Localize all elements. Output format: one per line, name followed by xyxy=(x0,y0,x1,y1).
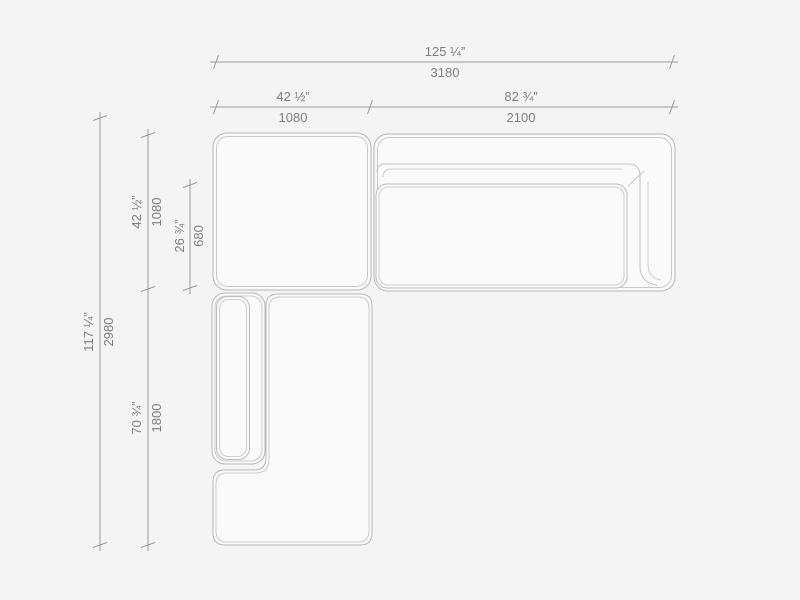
dim-chaise-depth-label-mm: 1800 xyxy=(149,404,164,433)
module-corner-seat xyxy=(213,133,371,290)
dim-overall-depth-label-mm: 2980 xyxy=(101,318,116,347)
sofa-plan-drawing: 125 ¼” 3180 42 ½” 1080 82 ¾” 2100 117 ¼”… xyxy=(0,0,800,600)
dim-top-depth-label-in: 42 ½” xyxy=(129,195,144,228)
chaise-armrest-cushion-outline xyxy=(217,297,250,460)
module-sofa-right xyxy=(374,134,675,291)
dim-right-width-label-mm: 2100 xyxy=(507,110,536,125)
dim-seat-depth-label-in: 26 ¾” xyxy=(172,219,187,252)
dim-overall-width-label-mm: 3180 xyxy=(431,65,460,80)
dim-overall-width-label-in: 125 ¼” xyxy=(425,44,465,59)
sofa-plan-page: 125 ¼” 3180 42 ½” 1080 82 ¾” 2100 117 ¼”… xyxy=(0,0,800,600)
dim-seat-depth-label-mm: 680 xyxy=(191,225,206,247)
dim-left-width-label-mm: 1080 xyxy=(279,110,308,125)
dim-left-width-label-in: 42 ½” xyxy=(276,89,309,104)
dim-top-depth-label-mm: 1080 xyxy=(149,198,164,227)
sofa-seat-cushion-outline xyxy=(376,184,627,288)
module-chaise xyxy=(212,293,372,545)
dim-section-depths xyxy=(141,129,155,551)
corner-seat-outline xyxy=(213,133,371,290)
dim-right-width-label-in: 82 ¾” xyxy=(504,89,537,104)
dim-overall-depth-label-in: 117 ¼” xyxy=(81,312,96,352)
dim-chaise-depth-label-in: 70 ¾” xyxy=(129,401,144,434)
